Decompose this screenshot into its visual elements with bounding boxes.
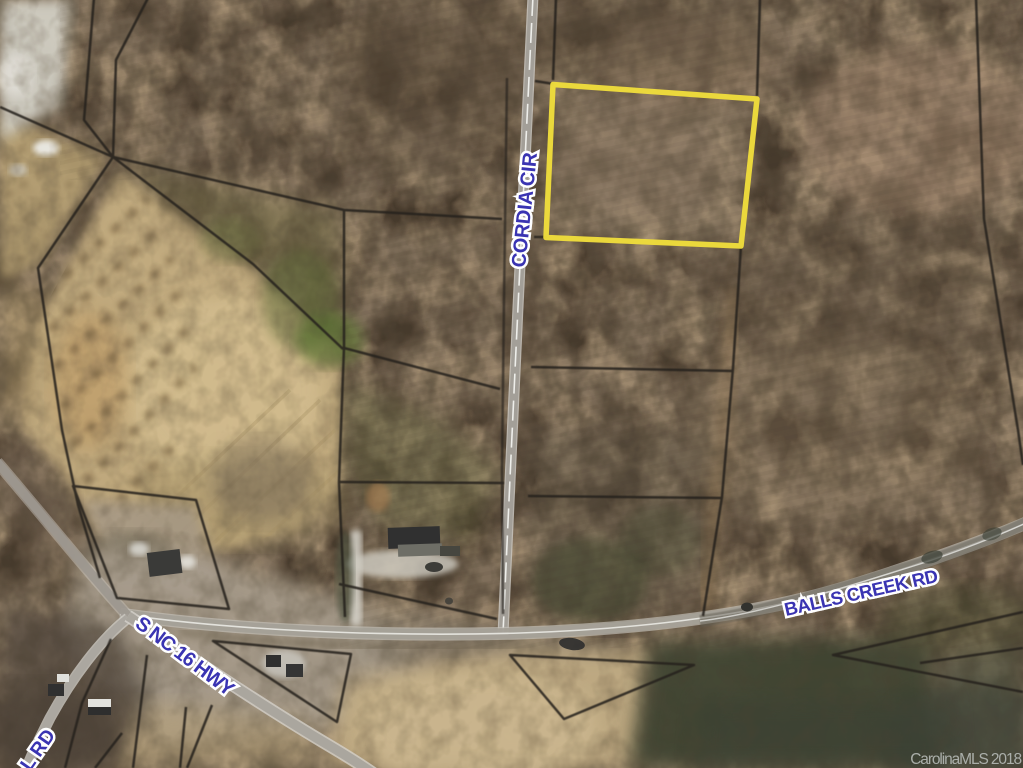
svg-text:CarolinaMLS 2018: CarolinaMLS 2018	[910, 751, 1021, 768]
